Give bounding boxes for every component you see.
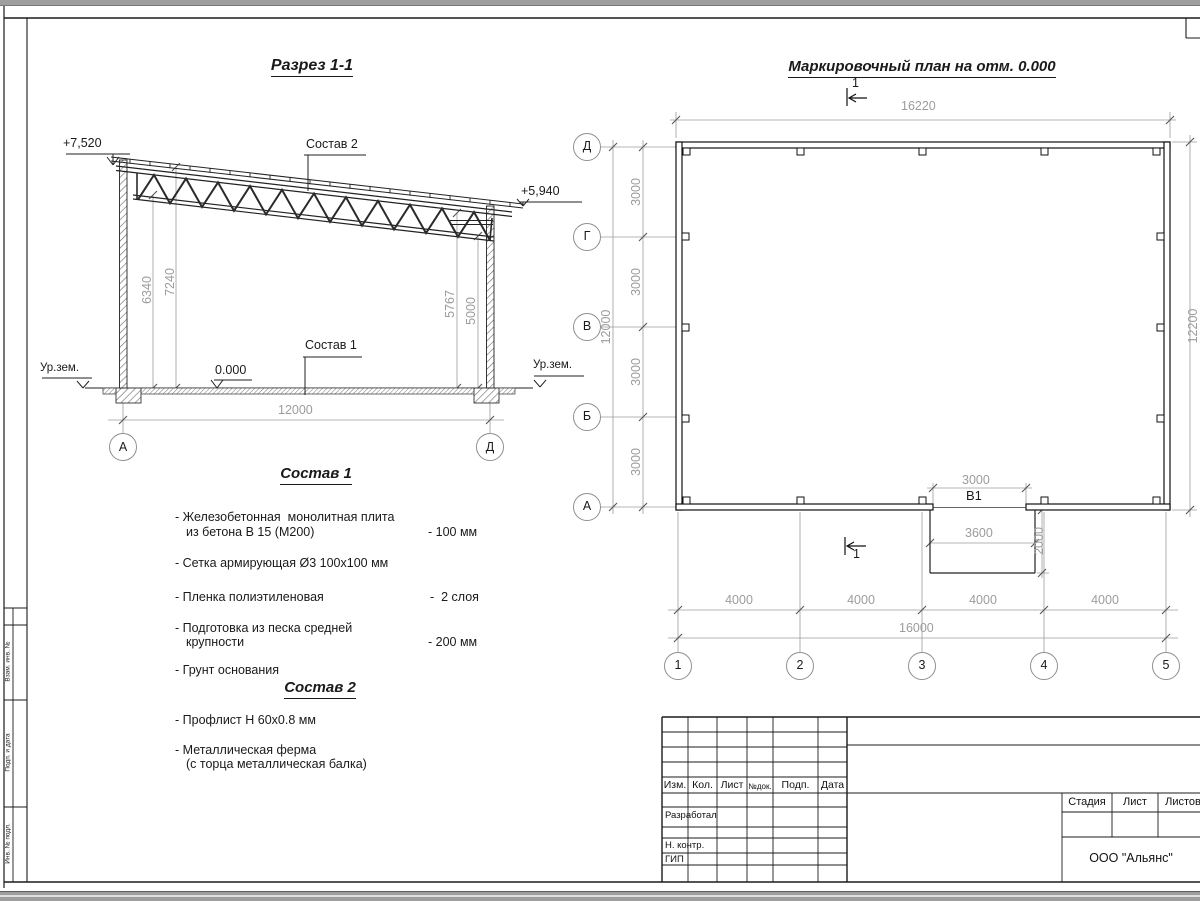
sostav1-item-3-value: - 2 слоя <box>430 591 479 605</box>
plan-dim-3000-4: 3000 <box>629 432 643 492</box>
sostav2-title: Состав 2 <box>256 679 384 697</box>
titleblock-role-gip: ГИП <box>665 854 684 865</box>
plan-col-bubble-3: 3 <box>909 658 935 672</box>
sostav2-ref-label: Состав 2 <box>306 138 358 152</box>
plan-dim-4000-4: 4000 <box>1088 594 1122 608</box>
plan-dim-right: 12200 <box>1186 296 1200 356</box>
sostav1-item-1-line2: из бетона В 15 (М200) <box>186 526 314 540</box>
plan-dim-4000-2: 4000 <box>844 594 878 608</box>
titleblock-stage-stadiya: Стадия <box>1062 796 1112 808</box>
plan-title-text: Маркировочный план на отм. 0.000 <box>788 58 1055 78</box>
sostav2-item-2-line2: (с торца металлическая балка) <box>186 758 367 772</box>
plan-dim-4000-1: 4000 <box>722 594 756 608</box>
plan-title: Маркировочный план на отм. 0.000 <box>788 58 1056 76</box>
plan-col-bubble-2: 2 <box>787 658 813 672</box>
frame-side-label-3: Инв. № подл. <box>4 808 13 880</box>
section-axis-d-bubble: Д <box>477 440 503 454</box>
section-title-text: Разрез 1-1 <box>271 57 353 77</box>
elevation-left-label: +7,520 <box>63 137 102 151</box>
titleblock-col-list: Лист <box>717 779 747 791</box>
section-linework <box>42 154 584 461</box>
ground-level-right-label: Ур.зем. <box>533 359 572 372</box>
frame-side-label-1: Взам. инв. № <box>4 626 13 698</box>
sostav2-item-2-line1: - Металлическая ферма <box>175 744 316 758</box>
titleblock-col-ndok: №док. <box>747 782 773 791</box>
plan-row-bubble-d: Д <box>574 139 600 153</box>
sostav1-item-1-line1: - Железобетонная монолитная плита <box>175 511 394 525</box>
sostav1-item-1-value: - 100 мм <box>428 526 477 540</box>
ground-level-left-label: Ур.зем. <box>40 362 79 375</box>
plan-dim-bottom-total: 16000 <box>899 622 934 636</box>
sostav1-ref-label: Состав 1 <box>305 339 357 353</box>
plan-dim-left-total: 12000 <box>599 297 613 357</box>
sostav1-item-4-value: - 200 мм <box>428 636 477 650</box>
sostav1-title-text: Состав 1 <box>280 465 352 485</box>
sheet-edge-highlight <box>0 895 1200 897</box>
drawing-sheet: Разрез 1-1 +7,520 Состав 2 +5,940 Ур.зем… <box>0 0 1200 900</box>
titleblock-role-nkontr: Н. контр. <box>665 840 704 851</box>
plan-linework <box>574 88 1198 680</box>
sostav1-item-4-line2: крупности <box>186 636 244 650</box>
section-dim-7240: 7240 <box>163 252 177 312</box>
frame-side-label-2: Подп. и дата <box>4 717 13 789</box>
sostav1-item-4-line1: - Подготовка из песка средней <box>175 622 352 636</box>
plan-dim-top: 16220 <box>901 100 936 114</box>
plan-col-bubble-4: 4 <box>1031 658 1057 672</box>
plan-row-bubble-a: А <box>574 499 600 513</box>
titleblock-company: ООО "Альянс" <box>1062 851 1200 865</box>
section-dim-6340: 6340 <box>140 260 154 320</box>
zero-elevation-label: 0.000 <box>215 364 246 378</box>
ramp-width-dim: 3600 <box>965 527 993 541</box>
plan-dim-3000-1: 3000 <box>629 162 643 222</box>
section-dim-5000: 5000 <box>464 281 478 341</box>
sostav1-item-5-line1: - Грунт основания <box>175 664 279 678</box>
sostav2-item-1-line1: - Профлист Н 60х0.8 мм <box>175 714 316 728</box>
section-span-dim: 12000 <box>278 404 313 418</box>
sostav1-item-2-line1: - Сетка армирующая Ø3 100х100 мм <box>175 557 388 571</box>
section-title: Разрез 1-1 <box>250 57 374 75</box>
plan-col-bubble-1: 1 <box>665 658 691 672</box>
door-dim: 3000 <box>962 474 990 488</box>
sostav2-title-text: Состав 2 <box>284 679 356 699</box>
drawing-linework <box>0 0 1200 900</box>
titleblock-stage-listov: Листов <box>1158 796 1200 808</box>
plan-dim-3000-2: 3000 <box>629 252 643 312</box>
titleblock-col-kol: Кол. <box>688 779 717 791</box>
ramp-depth-dim: 2000 <box>1032 511 1046 571</box>
plan-row-bubble-b: Б <box>574 409 600 423</box>
plan-dim-3000-3: 3000 <box>629 342 643 402</box>
titleblock-col-izm: Изм. <box>662 779 688 791</box>
plan-cut-mark-bottom: 1 <box>853 548 860 562</box>
titleblock-col-podp: Подп. <box>773 779 818 791</box>
titleblock-role-razrabotal: Разработал <box>665 810 717 821</box>
plan-row-bubble-g: Г <box>574 229 600 243</box>
titleblock-col-data: Дата <box>818 779 847 791</box>
section-dim-5767: 5767 <box>443 274 457 334</box>
section-axis-a-bubble: А <box>110 440 136 454</box>
titleblock-stage-list: Лист <box>1112 796 1158 808</box>
elevation-right-label: +5,940 <box>521 185 560 199</box>
plan-row-bubble-v: В <box>574 319 600 333</box>
door-label: В1 <box>966 489 982 503</box>
sheet-edge-top <box>0 0 1200 6</box>
sostav1-item-3-line1: - Пленка полиэтиленовая <box>175 591 324 605</box>
plan-col-bubble-5: 5 <box>1153 658 1179 672</box>
plan-cut-mark-top: 1 <box>852 77 859 91</box>
plan-dim-4000-3: 4000 <box>966 594 1000 608</box>
sostav1-title: Состав 1 <box>252 465 380 483</box>
